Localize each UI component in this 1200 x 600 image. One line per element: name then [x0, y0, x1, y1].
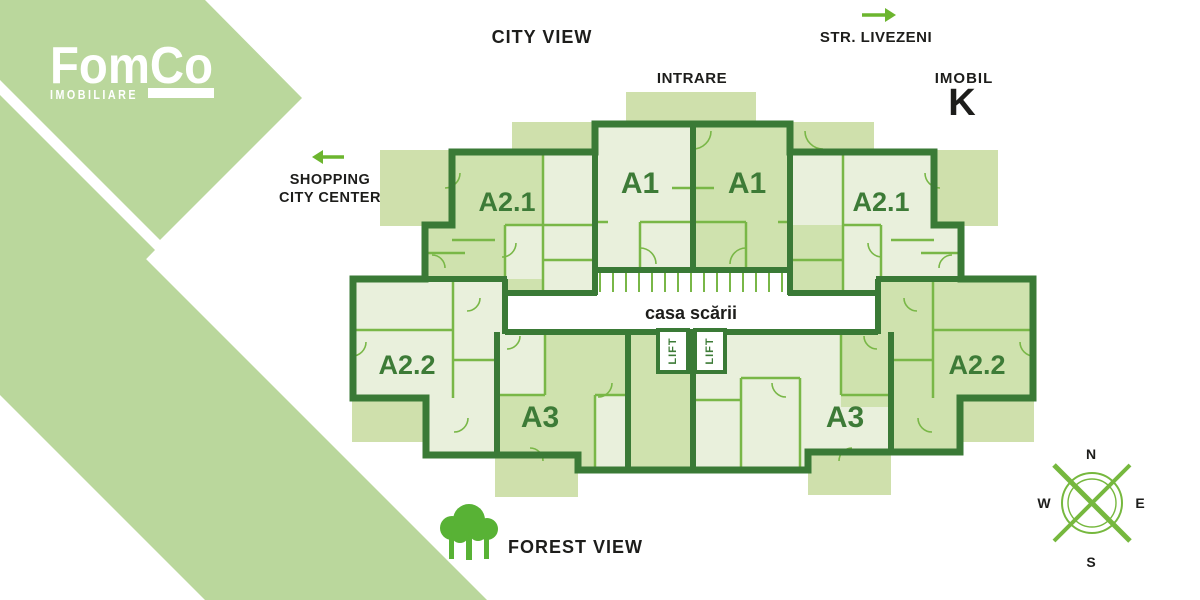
compass-west: W: [1037, 495, 1051, 511]
room-fill: [543, 152, 595, 292]
balcony-a3-right: [808, 452, 891, 495]
room-fill: [595, 395, 628, 470]
room-fill: [497, 332, 545, 395]
apartment-label-a1-left: A1: [621, 167, 659, 200]
apartment-label-a21-left: A2.1: [478, 187, 535, 217]
apartment-label-a3-left: A3: [521, 401, 559, 434]
arrow-right-icon: [862, 8, 896, 22]
balcony-far-left: [380, 150, 452, 226]
apartment-label-a22-right: A2.2: [948, 350, 1005, 380]
balcony-far-right: [934, 150, 998, 226]
lift-left-label: LIFT: [667, 337, 679, 364]
forest-view-label: FOREST VIEW: [508, 537, 643, 557]
compass-south: S: [1086, 554, 1095, 570]
str-livezeni-label: STR. LIVEZENI: [820, 29, 932, 46]
shopping-label-line1: SHOPPING: [290, 172, 371, 188]
apartment-label-a3-right: A3: [826, 401, 864, 434]
trees-icon: [440, 504, 498, 560]
floor-plan: LIFT LIFT casa scării A2.1 A1 A1 A2.1 A2…: [352, 92, 1034, 497]
balcony-bottom-right: [960, 398, 1034, 442]
logo-tagline: IMOBILIARE: [50, 87, 138, 102]
compass-rose: N S W E: [1037, 446, 1144, 570]
arrow-left-icon: [312, 150, 344, 164]
logo-underline: [148, 88, 214, 98]
balcony-bottom-left: [352, 398, 426, 442]
compass-east: E: [1135, 495, 1144, 511]
apartment-label-a1-right: A1: [728, 167, 766, 200]
intrare-label: INTRARE: [657, 70, 727, 87]
apartment-label-a21-right: A2.1: [852, 187, 909, 217]
lift-right-label: LIFT: [704, 337, 716, 364]
shopping-label-line2: CITY CENTER: [279, 190, 381, 206]
imobil-block-letter: K: [948, 82, 976, 124]
stair-treads: [600, 271, 782, 292]
room-fill: [505, 225, 543, 279]
balcony-a3-left: [495, 455, 578, 497]
staircase-label: casa scării: [645, 303, 737, 323]
apartment-label-a22-left: A2.2: [378, 350, 435, 380]
compass-north: N: [1086, 446, 1096, 462]
logo: FomCo IMOBILIARE: [50, 37, 214, 102]
floor-plan-page: FomCo IMOBILIARE CITY VIEW INTRARE STR. …: [0, 0, 1200, 600]
forest-view: FOREST VIEW: [440, 504, 643, 560]
city-view-label: CITY VIEW: [492, 27, 593, 47]
